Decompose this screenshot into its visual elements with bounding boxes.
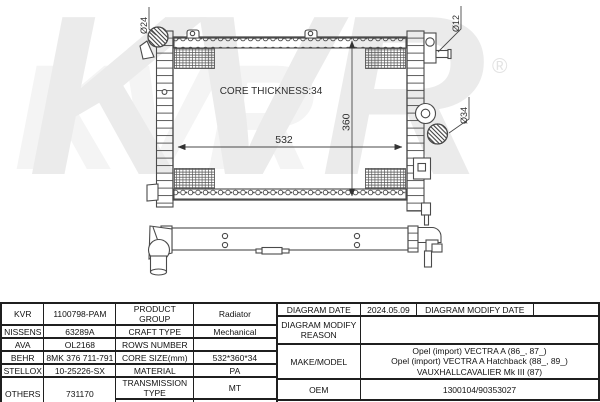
- mounting-tab-right: [305, 30, 317, 38]
- bottom-right-bracket: [414, 158, 431, 179]
- top-right-fitting: [424, 33, 451, 63]
- side-view: [149, 226, 443, 275]
- brand-code: 63289A: [44, 325, 116, 338]
- front-view: [140, 27, 451, 225]
- make-model-line: VAUXHALLCAVALIER Mk III (87): [362, 367, 597, 378]
- rows-number-value: [194, 338, 277, 351]
- side-hole: [354, 233, 359, 238]
- craft-type-value: Mechanical: [194, 325, 277, 338]
- spec-tables: KVR 1100798-PAM PRODUCT GROUP Radiator N…: [0, 302, 600, 401]
- table-row: OTHERS 731170 TRANSMISSION TYPE MT: [1, 377, 277, 399]
- oem-label: OEM: [277, 379, 361, 400]
- make-model-value: Opel (import) VECTRA A (86_, 87_) Opel (…: [360, 344, 599, 379]
- side-hole: [222, 233, 227, 238]
- left-bottom-bracket: [147, 184, 158, 201]
- fin-block-top-left: [175, 49, 215, 69]
- transmission-label: TRANSMISSION TYPE: [116, 377, 194, 399]
- product-group-value: Radiator: [194, 303, 277, 325]
- core-thickness-label: CORE THICKNESS:34: [220, 86, 323, 97]
- cross-reference-table: KVR 1100798-PAM PRODUCT GROUP Radiator N…: [0, 302, 278, 402]
- top-right-diameter-label: Ø12: [451, 15, 461, 32]
- diagram-modify-date-label: DIAGRAM MODIFY DATE: [416, 303, 533, 316]
- brand-name: NISSENS: [1, 325, 44, 338]
- make-model-line: Opel (import) VECTRA A Hatchback (88_, 8…: [362, 356, 597, 367]
- brand-name: STELLOX: [1, 364, 44, 377]
- table-row: AVA OL2168 ROWS NUMBER: [1, 338, 277, 351]
- brand-name: OTHERS: [1, 377, 44, 402]
- bottom-header-strip: [174, 189, 406, 199]
- material-value: PA: [194, 364, 277, 377]
- ring-boss: [416, 104, 436, 124]
- drain-plug: [422, 203, 431, 225]
- brand-code: 8MK 376 711-791: [44, 351, 116, 364]
- make-model-label: MAKE/MODEL: [277, 344, 361, 379]
- brand-name: BEHR: [1, 351, 44, 364]
- left-tank-hole: [162, 90, 167, 95]
- brand-name: KVR: [1, 303, 44, 325]
- inlet-diameter-label: Ø24: [139, 17, 149, 34]
- table-row: DIAGRAM MODIFY REASON: [277, 316, 599, 344]
- material-label: MATERIAL: [116, 364, 194, 377]
- side-right-cap: [408, 226, 418, 252]
- diagram-modify-date-value: [533, 303, 599, 316]
- radiator-technical-drawing: CORE THICKNESS:34 532 360 Ø24 Ø12 Ø34: [0, 0, 600, 300]
- oem-value: 1300104/90353027: [360, 379, 599, 400]
- brand-code: OL2168: [44, 338, 116, 351]
- brand-code: 1100798-PAM: [44, 303, 116, 325]
- table-row: NISSENS 63289A CRAFT TYPE Mechanical: [1, 325, 277, 338]
- vehicle-info-table: DIAGRAM DATE 2024.05.09 DIAGRAM MODIFY D…: [276, 302, 600, 401]
- transmission-value: MT: [194, 377, 277, 399]
- fin-block-bottom-right: [366, 169, 406, 189]
- brand-code: 731170: [44, 377, 116, 402]
- dim-532-label: 532: [275, 134, 293, 146]
- table-row: OEM 1300104/90353027: [277, 379, 599, 400]
- outlet-diameter-label: Ø34: [459, 107, 469, 124]
- brand-code: 10-25226-SX: [44, 364, 116, 377]
- table-row: STELLOX 10-25226-SX MATERIAL PA: [1, 364, 277, 377]
- left-tank: [157, 31, 174, 207]
- side-left-assembly: [149, 226, 173, 275]
- rows-number-label: ROWS NUMBER: [116, 338, 194, 351]
- table-row: DIAGRAM DATE 2024.05.09 DIAGRAM MODIFY D…: [277, 303, 599, 316]
- core-size-label: CORE SIZE(mm): [116, 351, 194, 364]
- diagram-date-value: 2024.05.09: [360, 303, 416, 316]
- side-right-assembly: [418, 228, 442, 268]
- core-size-value: 532*360*34: [194, 351, 277, 364]
- top-header-strip: [174, 38, 406, 48]
- side-body: [172, 228, 408, 250]
- make-model-line: Opel (import) VECTRA A (86_, 87_): [362, 346, 597, 357]
- table-row: BEHR 8MK 376 711-791 CORE SIZE(mm) 532*3…: [1, 351, 277, 364]
- brand-name: AVA: [1, 338, 44, 351]
- table-row: KVR 1100798-PAM PRODUCT GROUP Radiator: [1, 303, 277, 325]
- product-group-label: PRODUCT GROUP: [116, 303, 194, 325]
- catalog-page: KVR KVR ®: [0, 0, 600, 402]
- fin-block-top-right: [366, 49, 406, 69]
- table-row: MAKE/MODEL Opel (import) VECTRA A (86_, …: [277, 344, 599, 379]
- diagram-date-label: DIAGRAM DATE: [277, 303, 361, 316]
- mounting-tab-left: [187, 30, 199, 38]
- modify-reason-label: DIAGRAM MODIFY REASON: [277, 316, 361, 344]
- modify-reason-value: [360, 316, 599, 344]
- craft-type-label: CRAFT TYPE: [116, 325, 194, 338]
- side-hole: [354, 242, 359, 247]
- dim-360-label: 360: [341, 113, 353, 131]
- fin-block-bottom-left: [175, 169, 215, 189]
- side-hole: [222, 242, 227, 247]
- side-center-tab: [256, 248, 289, 255]
